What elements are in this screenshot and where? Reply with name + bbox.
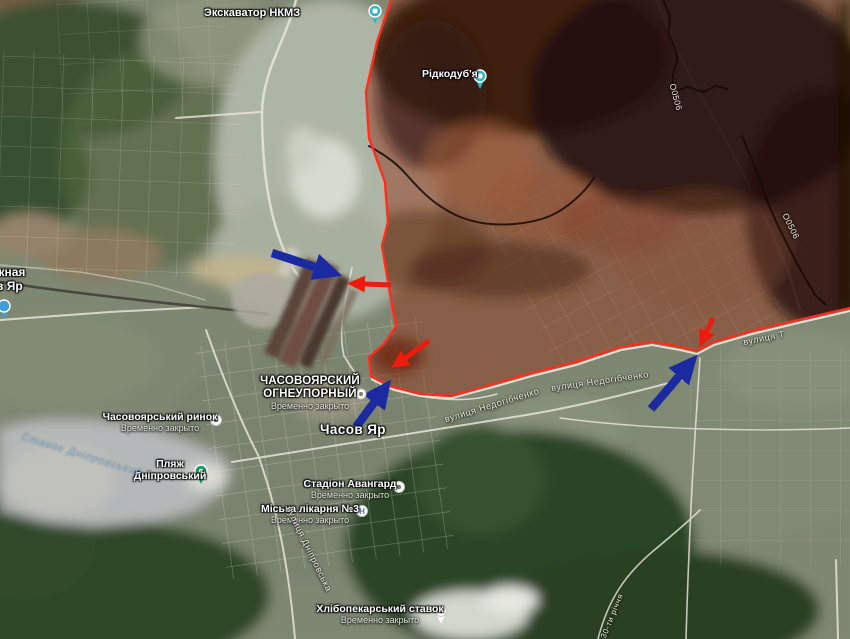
label-stadium: Стадіон Авангард Временно закрыто [304, 478, 397, 500]
svg-text:H: H [359, 507, 365, 516]
label-town-chasiv-yar: Часов Яр [320, 422, 386, 438]
label-plant-status: Временно закрыто [260, 401, 360, 411]
label-excavator: Экскаватор НКМЗ [204, 7, 300, 20]
satellite-map-graphics: H [0, 0, 850, 639]
label-market-status: Временно закрыто [103, 423, 218, 433]
label-bakery-pond-status: Временно закрыто [316, 615, 443, 625]
label-hospital-status: Временно закрыто [261, 515, 359, 525]
label-ridkodubya: Рідкодуб'я [422, 68, 478, 80]
label-stadium-status: Временно закрыто [304, 490, 397, 500]
label-bakery-pond: Хлібопекарський ставок Временно закрыто [316, 603, 443, 625]
label-hospital: Міська лікарня №3 Временно закрыто [261, 503, 359, 525]
label-plant: ЧАСОВОЯРСКИЙ ОГНЕУПОРНЫЙ Временно закрыт… [260, 375, 360, 411]
label-market: Часовоярський ринок Временно закрыто [103, 411, 218, 433]
advance-arrow-red-1 [363, 284, 391, 285]
label-beach: Пляж Дніпровський [134, 458, 207, 482]
map-canvas[interactable]: H Экскаватор НКМЗ Рідкодуб'я жная в Яр Ч… [0, 0, 850, 639]
label-station-cut: жная в Яр [0, 266, 25, 294]
